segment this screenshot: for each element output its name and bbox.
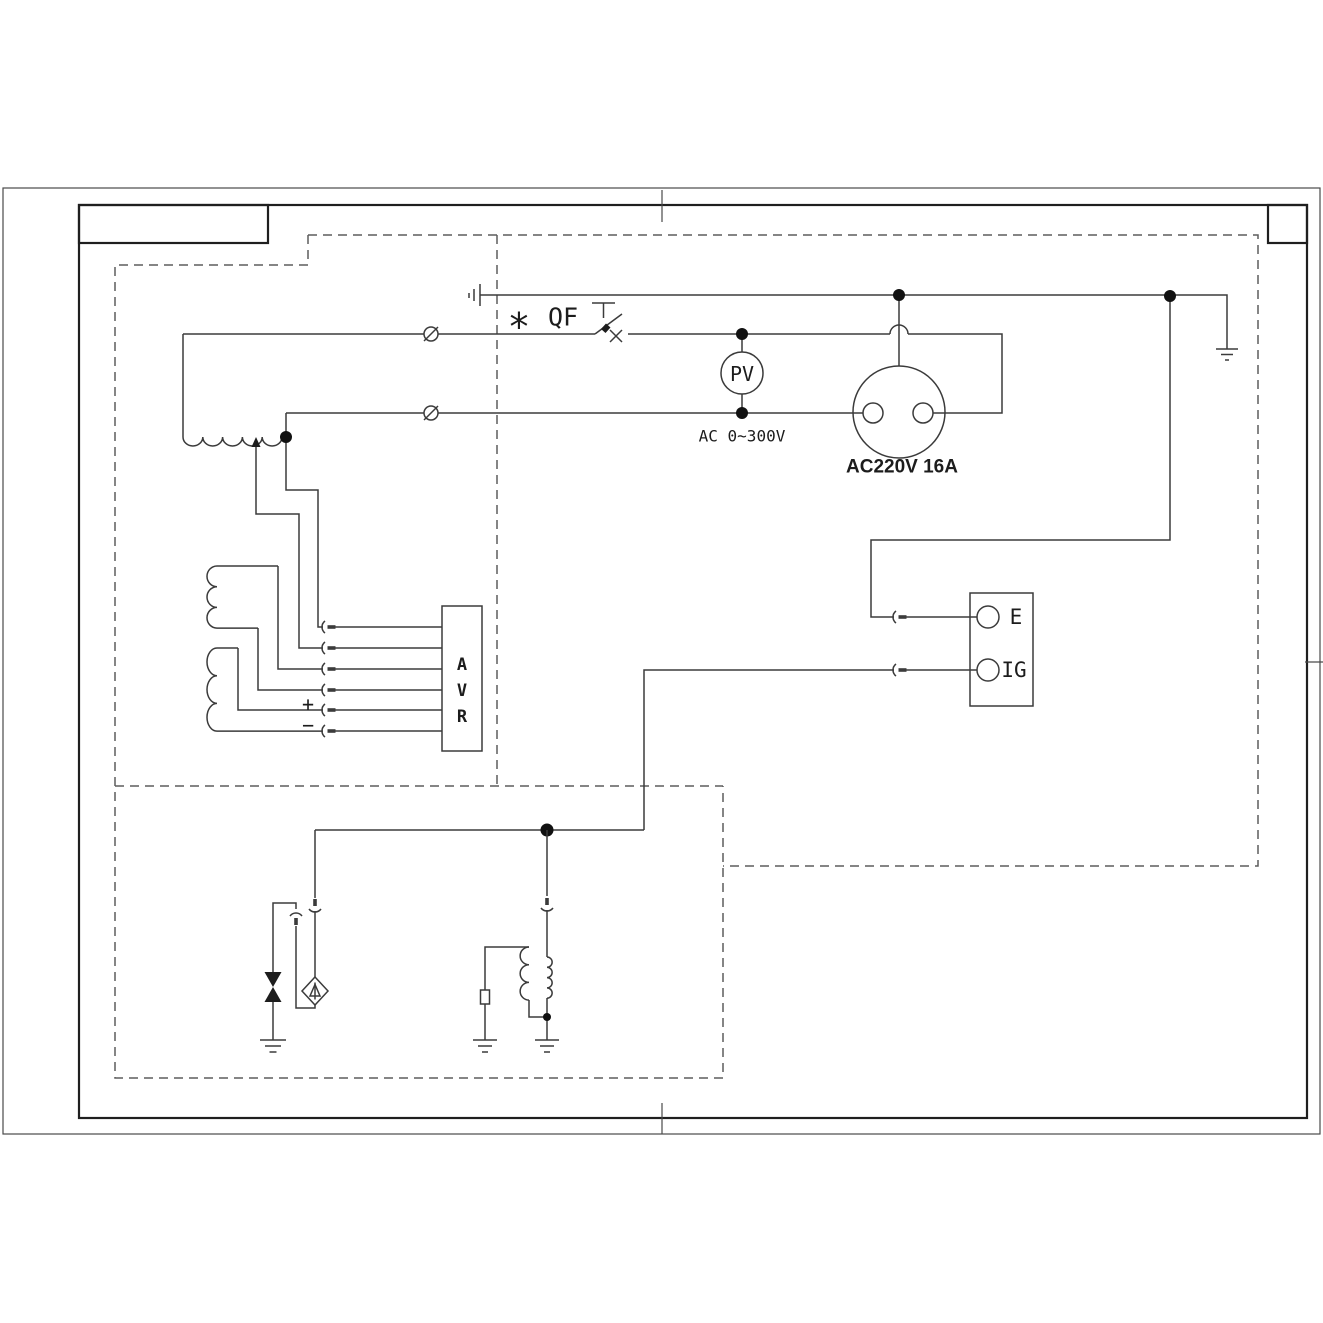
phase-star-label: * [508, 305, 531, 349]
breaker-blade [595, 314, 622, 334]
main-winding-coil [183, 437, 287, 446]
generator-windings: + − [183, 334, 323, 737]
avr-module: A V R [442, 606, 482, 751]
plug-connector-icon [893, 664, 977, 676]
suppressor-diamond-icon [302, 977, 328, 1005]
title-block-strip [79, 205, 268, 243]
sense-winding-lead-b [258, 628, 323, 690]
page-border [3, 188, 1320, 1134]
ground-icon [1216, 349, 1238, 360]
socket-rating-label: AC220V 16A [846, 457, 958, 478]
junction-dot [736, 328, 748, 340]
avr-letter-r: R [457, 707, 468, 727]
socket-pin-right [913, 403, 933, 423]
plug-connector-icon [322, 725, 442, 737]
avr-letter-v: V [457, 681, 467, 701]
junction-dot [736, 407, 748, 419]
voltmeter: PV AC 0~300V [699, 328, 786, 446]
output-line-2 [286, 406, 863, 420]
wiring-diagram-canvas: + − A V R [0, 0, 1323, 1323]
plug-connector-icon [290, 913, 302, 925]
plug-connector-icon [541, 898, 553, 911]
plug-connector-icon [322, 663, 442, 675]
section-boundaries [115, 235, 1258, 1078]
junction-dot [280, 431, 292, 443]
breaker-contact-cross [610, 330, 622, 342]
generator-engine-boundary [115, 235, 723, 1078]
ig-terminal-wire [644, 670, 894, 830]
center-tap-arrow-icon [252, 437, 261, 447]
center-tap-to-avr [256, 447, 323, 648]
terminal-e-screw [977, 606, 999, 628]
line1-to-socket [908, 334, 1002, 413]
socket-pin-left [863, 403, 883, 423]
engine-section [260, 824, 644, 1053]
voltmeter-label: PV [730, 362, 754, 386]
junction-dot [1164, 290, 1176, 302]
terminal-ig-label: IG [1001, 658, 1026, 682]
resistor-icon [481, 990, 490, 1004]
ground-icon [260, 1040, 286, 1052]
output-line-1: * QF [183, 303, 1002, 414]
terminal-block: E IG [644, 290, 1176, 830]
junction-dot [893, 289, 905, 301]
breaker-label: QF [548, 303, 578, 332]
breaker-switch [592, 303, 622, 342]
avr-box [442, 606, 482, 751]
ground-icon [473, 1040, 497, 1052]
junction-dot [543, 1013, 551, 1021]
ignition-coil-primary [547, 957, 552, 998]
ac-socket: AC220V 16A [846, 289, 958, 478]
voltmeter-range-label: AC 0~300V [699, 427, 786, 446]
avr-letter-a: A [457, 655, 467, 675]
ignition-coil-secondary [520, 947, 529, 1000]
bulkhead-connector-icon [424, 406, 438, 420]
plug-connector-icon [322, 684, 442, 696]
kill-diodes-icon [265, 972, 282, 1002]
frame-corner-box [1268, 205, 1307, 243]
terminal-ig-screw [977, 659, 999, 681]
control-section-boundary [308, 235, 1258, 866]
sense-winding-coil [207, 566, 278, 628]
ground-icon [535, 1040, 559, 1052]
terminal-e-label: E [1010, 605, 1023, 629]
plug-connector-icon [309, 899, 321, 912]
ground-icon [469, 284, 480, 306]
avr-harness [322, 621, 442, 737]
main-winding-to-avr [286, 437, 323, 627]
plug-connector-icon [322, 642, 442, 654]
schematic-page: + − A V R [0, 0, 1323, 1323]
plug-connector-icon [322, 704, 442, 716]
bulkhead-connector-icon [424, 327, 438, 341]
plug-connector-icon [322, 621, 442, 633]
sense-winding-lead-a [278, 566, 323, 669]
neutral-bus [469, 284, 1238, 360]
drawing-frame [79, 205, 1307, 1118]
plug-connector-icon [893, 611, 977, 623]
socket-body [853, 366, 945, 458]
dc-minus-label: − [302, 713, 314, 737]
breaker-contact-block [601, 324, 611, 334]
